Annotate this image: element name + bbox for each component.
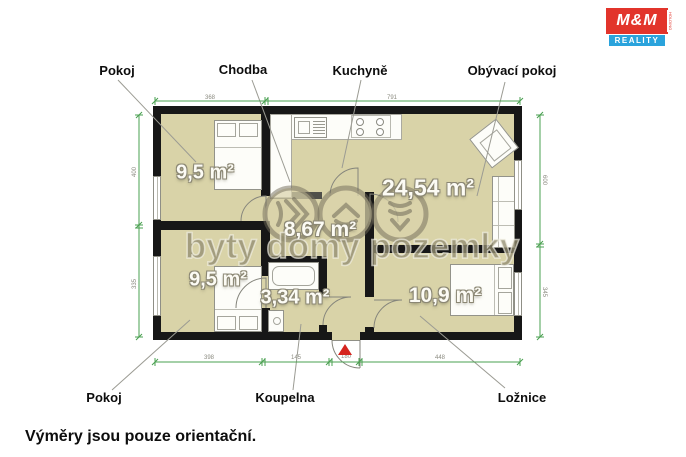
label-koupelna: Koupelna (255, 390, 314, 405)
stove-icon (351, 115, 391, 138)
mm-reality-logo: M&M HOLDING REALITY (606, 8, 674, 48)
window (514, 272, 522, 316)
window (153, 256, 161, 316)
floorplan-page: 368 791 400 335 600 345 398 145 180 448 (0, 0, 686, 457)
label-chodba: Chodba (219, 62, 267, 77)
room-area-obyvaci-pokoj: 24,54 m² (382, 175, 474, 202)
window (153, 176, 161, 220)
washbasin-icon (268, 310, 284, 332)
dim-left-upper: 400 (132, 166, 138, 177)
bathroom-wall (319, 325, 327, 332)
watermark-text: byty domy pozemky (162, 227, 542, 267)
logo-holding-text: HOLDING (667, 10, 673, 32)
label-obyvaci-pokoj: Obývací pokoj (468, 63, 557, 78)
dim-top-right: 791 (387, 95, 398, 101)
room-area-pokoj-bottom: 9,5 m² (189, 269, 247, 292)
footer-disclaimer: Výměry jsou pouze orientační. (25, 428, 256, 446)
wall-segment (261, 114, 270, 196)
sink-icon (294, 117, 327, 138)
dim-bottom-1: 398 (204, 355, 215, 361)
dim-right-lower: 345 (541, 287, 547, 298)
room-area-pokoj-top: 9,5 m² (176, 162, 234, 185)
dim-top-left: 368 (205, 95, 216, 101)
label-loznice: Ložnice (498, 390, 546, 405)
dim-bottom-2: 145 (291, 355, 302, 361)
label-pokoj-bottom: Pokoj (86, 390, 121, 405)
dim-bottom-4: 448 (435, 355, 446, 361)
label-kuchyne: Kuchyně (333, 63, 388, 78)
logo-mm-text: M&M (606, 8, 668, 34)
room-area-loznice: 10,9 m² (409, 284, 481, 308)
dim-left-lower: 335 (132, 278, 138, 289)
kitchen-counter-icon (270, 114, 292, 198)
wall-segment (365, 327, 374, 332)
entrance-marker-icon (338, 344, 352, 355)
logo-reality-text: REALITY (609, 35, 665, 46)
entrance-opening (332, 332, 360, 341)
dim-right-upper: 600 (541, 175, 547, 186)
window (514, 160, 522, 210)
label-pokoj-top: Pokoj (99, 63, 134, 78)
room-area-koupelna: 3,34 m² (261, 287, 330, 310)
